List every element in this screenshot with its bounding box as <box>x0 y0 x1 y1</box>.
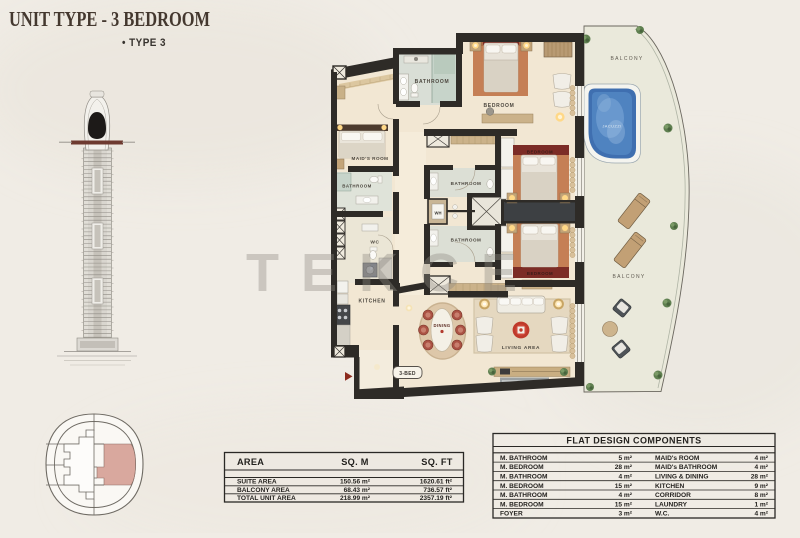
svg-text:LIVING AREA: LIVING AREA <box>502 345 540 351</box>
svg-text:736.57 ft²: 736.57 ft² <box>423 487 452 494</box>
svg-text:3-BED: 3-BED <box>399 371 416 377</box>
svg-text:• TYPE 3: • TYPE 3 <box>122 37 166 49</box>
svg-text:MAID's ROOM: MAID's ROOM <box>655 455 700 462</box>
svg-text:28 m²: 28 m² <box>615 464 633 471</box>
svg-text:5 m²: 5 m² <box>618 455 632 462</box>
svg-text:4 m²: 4 m² <box>754 464 768 471</box>
svg-text:UNIT TYPE - 3 BEDROOM: UNIT TYPE - 3 BEDROOM <box>9 7 210 31</box>
svg-text:JACUZZI: JACUZZI <box>602 124 621 129</box>
svg-text:SUITE AREA: SUITE AREA <box>237 479 277 486</box>
svg-text:M. BATHROOM: M. BATHROOM <box>500 455 548 462</box>
svg-text:M. BATHROOM: M. BATHROOM <box>500 474 548 481</box>
svg-text:CORRIDOR: CORRIDOR <box>655 492 691 499</box>
svg-text:M. BATHROOM: M. BATHROOM <box>500 492 548 499</box>
svg-text:3 m²: 3 m² <box>618 511 632 518</box>
svg-text:AREA: AREA <box>237 457 264 467</box>
svg-text:150.56 m²: 150.56 m² <box>340 479 371 486</box>
svg-text:SQ. FT: SQ. FT <box>421 457 452 467</box>
svg-text:8 m²: 8 m² <box>754 492 768 499</box>
svg-text:W.C.: W.C. <box>655 511 669 518</box>
svg-text:BALCONY AREA: BALCONY AREA <box>237 487 290 494</box>
svg-text:BATHROOM: BATHROOM <box>342 184 372 189</box>
svg-text:LIVING & DINING: LIVING & DINING <box>655 474 708 481</box>
svg-text:DINING: DINING <box>433 323 450 328</box>
svg-text:4 m²: 4 m² <box>754 511 768 518</box>
svg-text:1 m²: 1 m² <box>754 501 768 508</box>
svg-text:KITCHEN: KITCHEN <box>655 483 685 490</box>
svg-text:9 m²: 9 m² <box>754 483 768 490</box>
svg-text:M. BEDROOM: M. BEDROOM <box>500 464 544 471</box>
svg-text:BATHROOM: BATHROOM <box>415 79 450 85</box>
svg-text:68.43 m²: 68.43 m² <box>344 487 371 494</box>
svg-text:FOYER: FOYER <box>500 511 523 518</box>
svg-text:28 m²: 28 m² <box>751 474 769 481</box>
svg-text:MAID's BATHROOM: MAID's BATHROOM <box>655 464 718 471</box>
svg-text:LAUNDRY: LAUNDRY <box>655 501 688 508</box>
svg-text:BALCONY: BALCONY <box>613 274 646 280</box>
svg-text:4 m²: 4 m² <box>618 474 632 481</box>
svg-text:BALCONY: BALCONY <box>611 56 644 62</box>
svg-text:4 m²: 4 m² <box>754 455 768 462</box>
svg-text:TOTAL UNIT AREA: TOTAL UNIT AREA <box>237 495 296 502</box>
svg-text:1620.61 ft²: 1620.61 ft² <box>420 479 453 486</box>
svg-text:FLAT DESIGN COMPONENTS: FLAT DESIGN COMPONENTS <box>566 436 701 446</box>
svg-text:BATHROOM: BATHROOM <box>451 181 482 186</box>
svg-text:TEKCE: TEKCE <box>246 243 539 303</box>
svg-text:WH: WH <box>435 211 442 216</box>
svg-text:BEDROOM: BEDROOM <box>527 150 553 155</box>
svg-text:2357.19 ft²: 2357.19 ft² <box>420 495 453 502</box>
svg-text:15 m²: 15 m² <box>615 501 633 508</box>
svg-text:MAID'S ROOM: MAID'S ROOM <box>352 156 389 161</box>
svg-text:M. BEDROOM: M. BEDROOM <box>500 501 544 508</box>
svg-text:218.99 m²: 218.99 m² <box>340 495 371 502</box>
svg-text:4 m²: 4 m² <box>618 492 632 499</box>
svg-text:M. BEDROOM: M. BEDROOM <box>500 483 544 490</box>
svg-text:SQ. M: SQ. M <box>341 457 369 467</box>
svg-text:15 m²: 15 m² <box>615 483 633 490</box>
